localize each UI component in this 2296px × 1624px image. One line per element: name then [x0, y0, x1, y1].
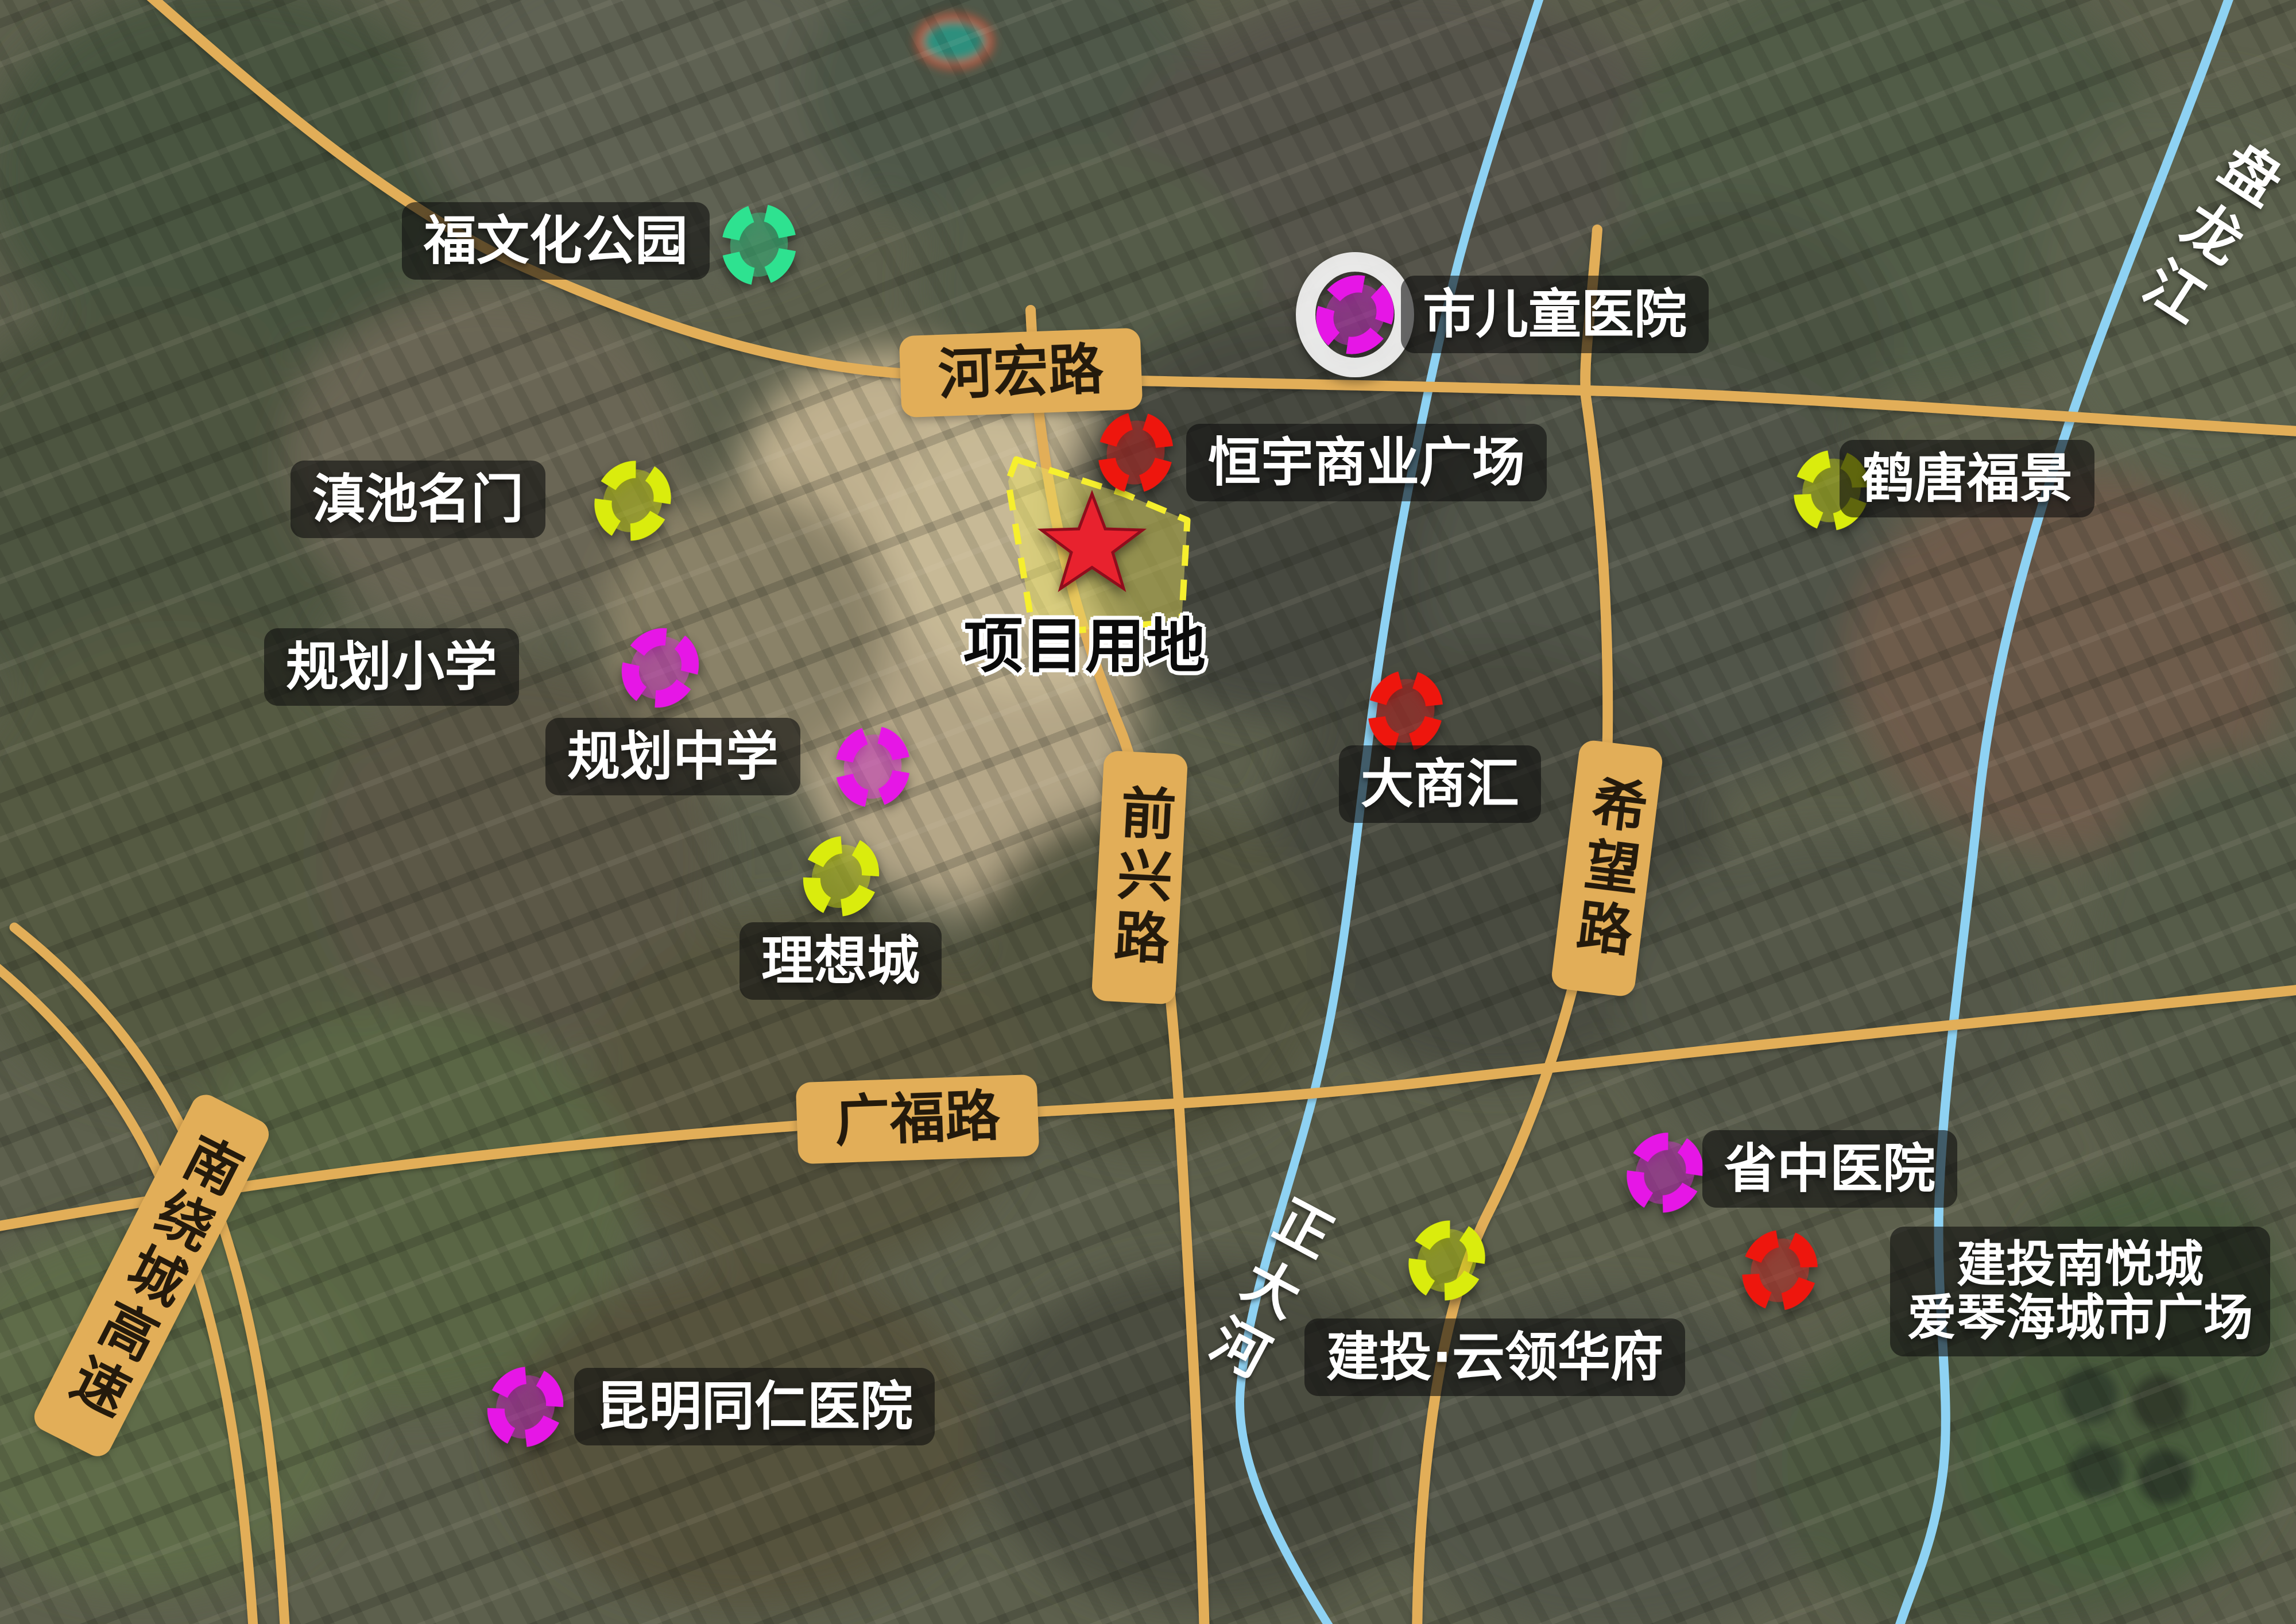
- project-site-label: 项目用地: [963, 597, 1207, 684]
- road-label-guangfu: 广福路: [796, 1074, 1040, 1164]
- poi-label-planned-middle: 规划中学: [545, 718, 800, 795]
- hengyu-plaza-marker: [1099, 414, 1172, 491]
- jiantou-nanyue-marker: [1742, 1230, 1818, 1310]
- poi-label-tongren-hospital: 昆明同仁医院: [574, 1368, 935, 1445]
- road-label-hehong: 河宏路: [899, 328, 1143, 417]
- dashanghui-marker: [1369, 672, 1442, 749]
- poi-label-dianchi-mingmen: 滇池名门: [291, 461, 545, 538]
- poi-label-hetang-fujing: 鹤唐福景: [1840, 440, 2094, 517]
- poi-label-planned-primary: 规划小学: [264, 628, 519, 706]
- poi-label-children-hospital: 市儿童医院: [1401, 276, 1709, 353]
- jiantou-nanyue-line1: 建投南悦城: [1907, 1238, 2253, 1292]
- poi-label-hengyu-plaza: 恒宇商业广场: [1186, 424, 1547, 501]
- tongren-hospital-marker: [486, 1366, 565, 1448]
- satellite-location-map: 福文化公园 市儿童医院 恒宇商业广场 滇池名门 鹤唐福景 规划小学 规划中学 理…: [0, 0, 2296, 1624]
- fuwenhua-park-marker: [725, 208, 793, 281]
- lixiang-city-marker: [802, 835, 881, 918]
- jiantou-nanyue-line2: 爱琴海城市广场: [1907, 1292, 2253, 1345]
- poi-label-lixiang-city: 理想城: [739, 922, 942, 1000]
- road-label-qianxing: 前兴路: [1091, 750, 1188, 1004]
- poi-label-provincial-tcm: 省中医院: [1702, 1130, 1957, 1208]
- planned-middle-marker: [839, 730, 907, 803]
- poi-label-jiantou-nanyue: 建投南悦城 爱琴海城市广场: [1890, 1227, 2270, 1356]
- poi-label-yunling-mansion: 建投·云领华府: [1304, 1318, 1685, 1396]
- provincial-tcm-marker: [1624, 1131, 1706, 1215]
- dianchi-mingmen-marker: [592, 459, 674, 543]
- poi-label-dashanghui: 大商汇: [1339, 745, 1541, 823]
- planned-primary-marker: [618, 625, 702, 710]
- poi-label-fuwenhua-park: 福文化公园: [402, 202, 710, 280]
